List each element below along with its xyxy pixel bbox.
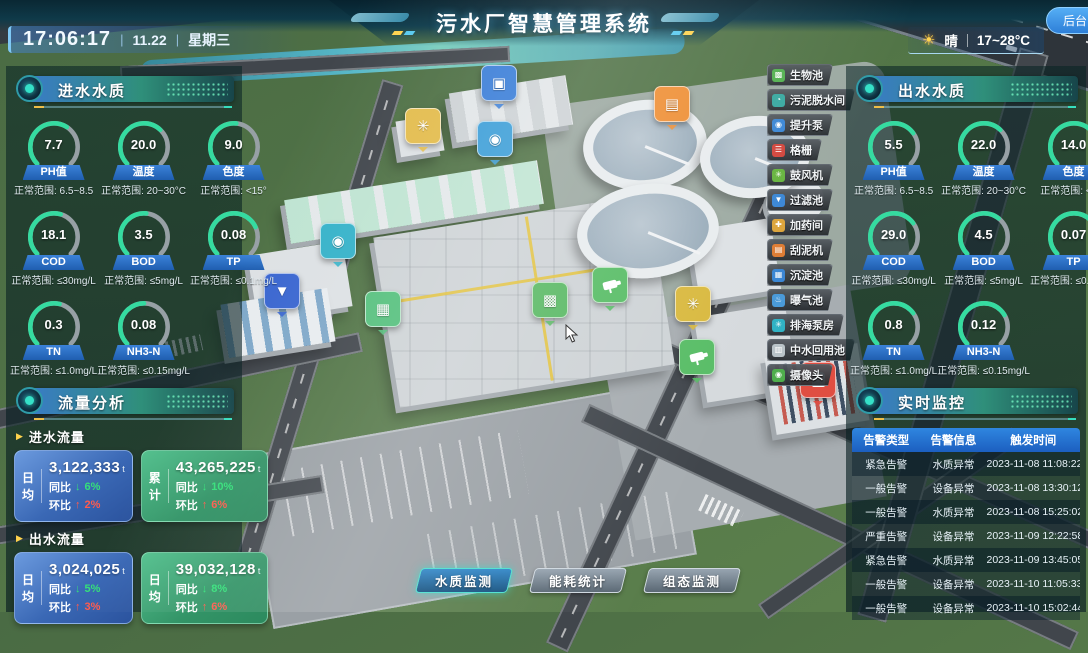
map-marker-camera-2[interactable] [679,339,715,375]
weather-bar: ☀ 晴 17~28°C [908,27,1044,54]
map-marker-bio[interactable]: ▩ [532,282,568,318]
sea-pump-house-icon: ✳ [772,319,785,332]
gauge-tn: 0.3TN 正常范围: ≤1.0mg/L [10,296,97,386]
gauge-chroma: 14.0色度 正常范围: <15° [1030,116,1088,206]
facility-button-camera[interactable]: ◉ 摄像头 [767,364,833,386]
pump-icon: ◉ [488,132,501,147]
facility-button-list: ▩ 生物池 ◔ 污泥脱水间 ◉ 提升泵 ☰ 格栅 ✳ 鼓风机 ▼ 过滤池 ✚ 加… [767,64,855,386]
alarm-row[interactable]: 紧急告警水质异常2023-11-09 13:45:05 [852,548,1080,572]
gauge-tp: 0.08TP 正常范围: ≤0.1mg/L [190,206,277,296]
facility-button-dosing-room[interactable]: ✚ 加药间 [767,214,833,236]
water-reuse-pool-icon: ▥ [772,344,785,357]
mud-scraper-icon: ▤ [772,244,785,257]
dot-matrix-decoration [1010,82,1072,96]
alarm-table: 告警类型 告警信息 触发时间 紧急告警水质异常2023-11-08 11:08:… [852,428,1080,620]
triangle-icon: ▶ [16,431,23,442]
alarm-row[interactable]: 一般告警设备异常2023-11-08 13:30:12 [852,476,1080,500]
up-arrow-icon: ↑ [75,601,81,613]
grid-screen-icon: ☰ [772,144,785,157]
tab-energy-statistics[interactable]: 能耗统计 [532,568,624,593]
fan-icon: ✳ [687,297,700,312]
gauge-ph: 7.7PH值 正常范围: 6.5~8.5 [10,116,97,206]
alarm-table-header: 告警类型 告警信息 触发时间 [852,428,1080,452]
camera-icon [689,351,705,362]
facility-button-water-reuse-pool[interactable]: ▥ 中水回用池 [767,339,855,361]
panel-header: 出水水质 [856,76,1078,102]
inflow-total-card: 累计 43,265,225t 同比↓10% 环比↑6% [141,450,269,522]
inlet-quality-panel: 进水水质 7.7PH值 正常范围: 6.5~8.5 20.0温度 正常范围: 2… [6,66,242,612]
panel-header: 实时监控 [856,388,1078,414]
camera-icon [602,279,618,290]
map-marker-fan[interactable]: ✳ [405,108,441,144]
outflow-total-card: 日均 39,032,128t 同比↓8% 环比↑6% [141,552,269,624]
facility-button-sedimentation-pool[interactable]: ▦ 沉淀池 [767,264,833,286]
sun-icon: ☀ [922,31,935,49]
down-arrow-icon: ↓ [75,481,81,493]
facility-button-bio-pool[interactable]: ▩ 生物池 [767,64,833,86]
down-arrow-icon: ↓ [75,583,81,595]
facility-button-lift-pump[interactable]: ◉ 提升泵 [767,114,833,136]
facility-button-aeration-pool[interactable]: ♨ 曝气池 [767,289,833,311]
gauge-cod: 18.1COD 正常范围: ≤30mg/L [10,206,97,296]
title-swoosh-left [349,13,411,22]
inflow-subtitle: ▶ 进水流量 [6,420,242,450]
triangle-icon: ▶ [16,533,23,544]
bio-pool-icon: ▩ [772,69,785,82]
pump-icon: ◉ [331,234,344,249]
gauge-cod: 29.0COD 正常范围: ≤30mg/L [850,206,937,296]
alarm-row[interactable]: 一般告警设备异常2023-11-10 11:05:33 [852,572,1080,596]
panel-header: 进水水质 [16,76,234,102]
map-marker-reuse[interactable]: ▦ [365,291,401,327]
panel-badge-icon [856,75,883,102]
panel-header: 流量分析 [16,388,234,414]
outflow-subtitle: ▶ 出水流量 [6,522,242,552]
facility-button-filter-pool[interactable]: ▼ 过滤池 [767,189,833,211]
bio-pool-icon: ▩ [543,293,557,308]
facility-button-mud-scraper[interactable]: ▤ 刮泥机 [767,239,833,261]
backend-button[interactable]: 后台 [1046,7,1088,34]
title-swoosh-right [659,13,721,22]
map-marker-pump[interactable]: ◉ [477,121,513,157]
gauge-bod: 3.5BOD 正常范围: ≤5mg/L [97,206,190,296]
time-text: 17:06:17 [23,28,111,51]
up-arrow-icon: ↑ [202,601,208,613]
gauge-chroma: 9.0色度 正常范围: <15° [190,116,277,206]
panel-badge-icon [16,75,43,102]
map-marker-scraper[interactable]: ▤ [654,86,690,122]
panel-badge-icon [16,387,43,414]
outlet-quality-panel: 出水水质 5.5PH值 正常范围: 6.5~8.5 22.0温度 正常范围: 2… [846,66,1086,612]
dot-matrix-decoration [166,82,228,96]
dot-matrix-decoration [1010,394,1072,408]
fan-icon: ✳ [417,119,430,134]
map-marker-pump-2[interactable]: ◉ [320,223,356,259]
weather-condition: 晴 [944,30,958,50]
alarm-row[interactable]: 严重告警设备异常2023-11-09 12:22:58 [852,524,1080,548]
inlet-gauges: 7.7PH值 正常范围: 6.5~8.5 20.0温度 正常范围: 20~30°… [6,108,242,386]
map-marker-fan-2[interactable]: ✳ [675,286,711,322]
reuse-pool-icon: ▦ [376,302,390,317]
weather-temp: 17~28°C [977,33,1030,48]
down-arrow-icon: ↓ [202,481,208,493]
up-arrow-icon: ↑ [202,499,208,511]
gauge-nh3n: 0.08NH3-N 正常范围: ≤0.15mg/L [97,296,190,386]
gauge-temperature: 20.0温度 正常范围: 20~30°C [97,116,190,206]
dot-matrix-decoration [166,394,228,408]
facility-button-sea-pump-house[interactable]: ✳ 排海泵房 [767,314,844,336]
filter-pool-icon: ▼ [772,194,785,207]
lift-pump-icon: ◉ [772,119,785,132]
sedimentation-pool-icon: ▦ [772,269,785,282]
facility-button-blower[interactable]: ✳ 鼓风机 [767,164,833,186]
up-arrow-icon: ↑ [75,499,81,511]
alarm-row[interactable]: 一般告警设备异常2023-11-10 15:02:44 [852,596,1080,620]
aeration-pool-icon: ♨ [772,294,785,307]
down-arrow-icon: ↓ [202,583,208,595]
map-marker-monitor[interactable]: ▣ [481,65,517,101]
map-marker-camera[interactable] [592,267,628,303]
weekday-text: 星期三 [188,30,230,50]
panel-badge-icon [856,387,883,414]
facility-button-sludge-dewater[interactable]: ◔ 污泥脱水间 [767,89,855,111]
date-text: 11.22 [132,32,166,48]
dosing-room-icon: ✚ [772,219,785,232]
monitor-icon: ▣ [492,76,506,91]
tab-configuration-monitor[interactable]: 组态监测 [646,568,738,593]
clock-bar: 17:06:17 | 11.22 | 星期三 [8,26,300,53]
inflow-daily-card: 日均 3,122,333t 同比↓6% 环比↑2% [14,450,133,522]
gauge-tp: 0.07TP 正常范围: ≤0.1mg/L [1030,206,1088,296]
gauge-nh3n: 0.12NH3-N 正常范围: ≤0.15mg/L [937,296,1030,386]
gauge-tn: 0.8TN 正常范围: ≤1.0mg/L [850,296,937,386]
gauge-temperature: 22.0温度 正常范围: 20~30°C [937,116,1030,206]
sludge-dewater-icon: ◔ [772,94,785,107]
facility-button-grid-screen[interactable]: ☰ 格栅 [767,139,822,161]
camera-icon: ◉ [772,369,785,382]
outflow-daily-card: 日均 3,024,025t 同比↓5% 环比↑3% [14,552,133,624]
gauge-ph: 5.5PH值 正常范围: 6.5~8.5 [850,116,937,206]
gauge-bod: 4.5BOD 正常范围: ≤5mg/L [937,206,1030,296]
outlet-gauges: 5.5PH值 正常范围: 6.5~8.5 22.0温度 正常范围: 20~30°… [846,108,1086,386]
bottom-tab-bar: 水质监测 能耗统计 组态监测 [418,568,738,593]
tab-water-quality-monitor[interactable]: 水质监测 [418,568,510,593]
mouse-cursor [565,324,579,349]
alarm-row[interactable]: 紧急告警水质异常2023-11-08 11:08:22 [852,452,1080,476]
blower-icon: ✳ [772,169,785,182]
scraper-icon: ▤ [665,97,679,112]
alarm-row[interactable]: 一般告警水质异常2023-11-08 15:25:02 [852,500,1080,524]
